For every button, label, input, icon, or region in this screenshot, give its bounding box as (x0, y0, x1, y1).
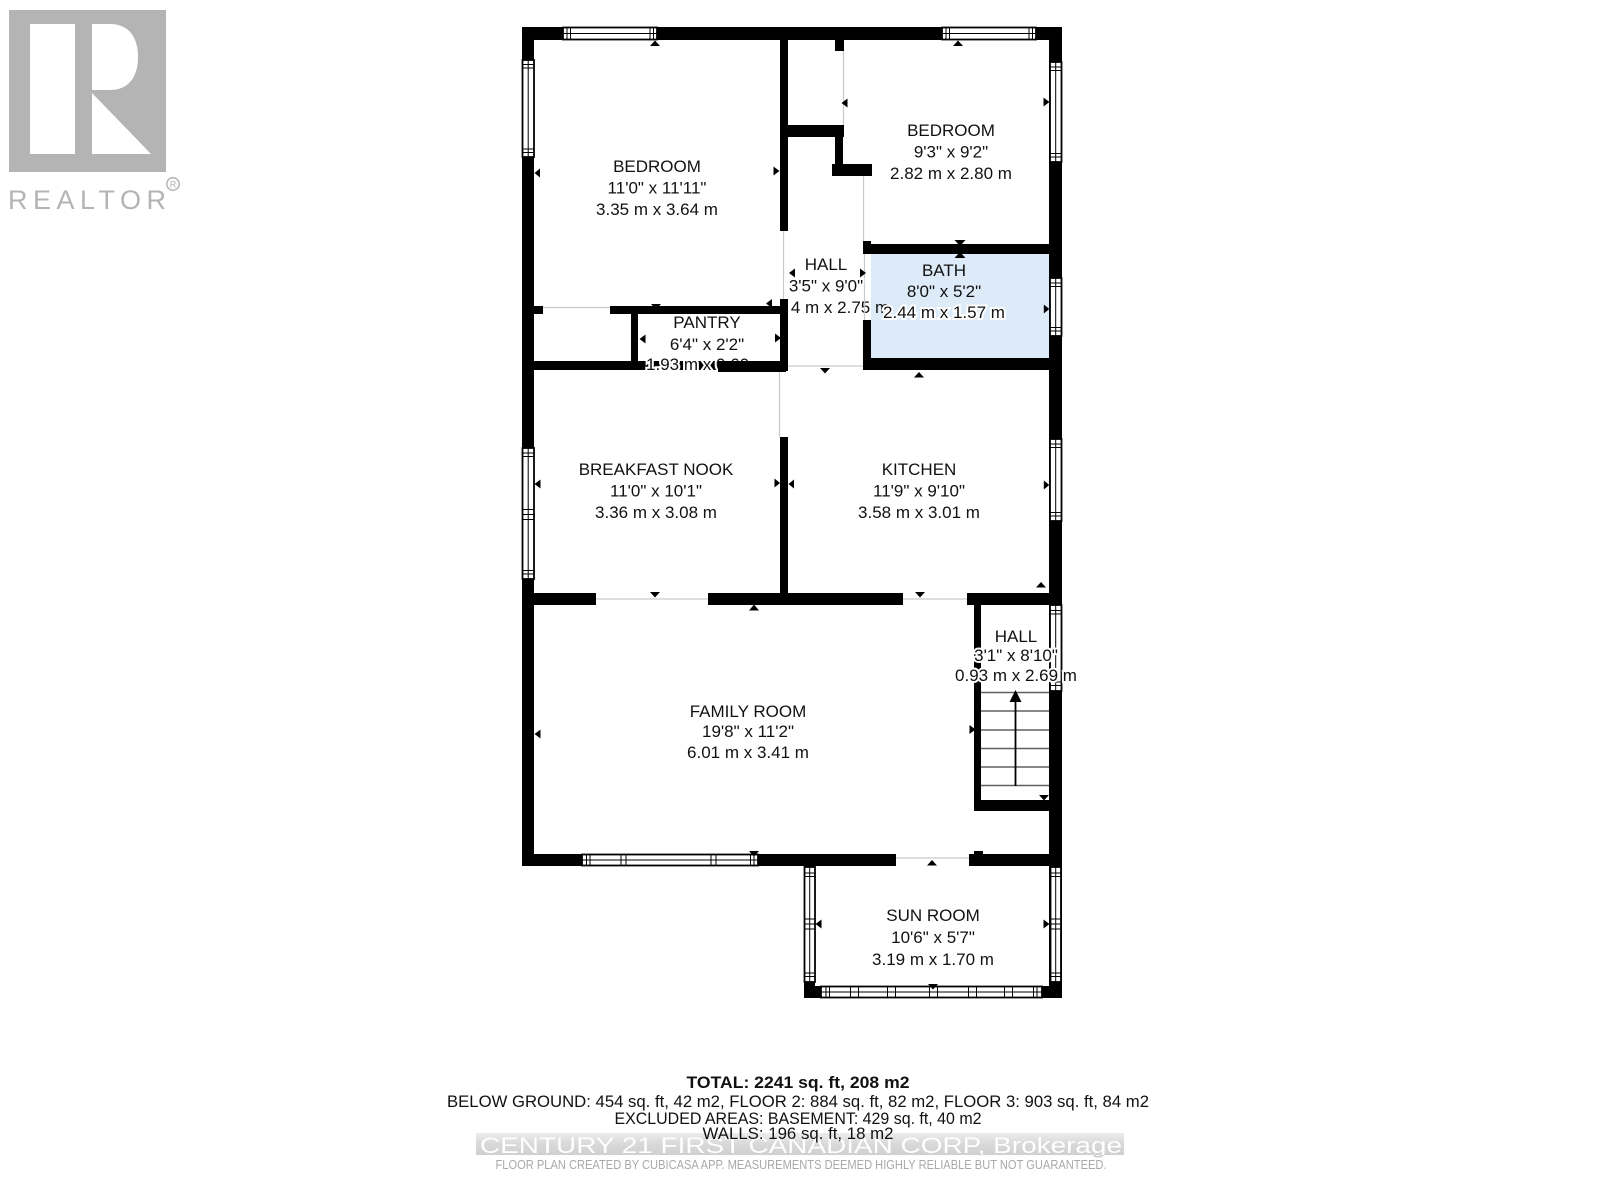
svg-text:BREAKFAST NOOK: BREAKFAST NOOK (579, 460, 734, 479)
svg-text:3'1" x 8'10": 3'1" x 8'10" (974, 646, 1058, 665)
svg-text:0.93 m x 2.69 m: 0.93 m x 2.69 m (955, 666, 1077, 685)
svg-text:2.82 m x 2.80 m: 2.82 m x 2.80 m (890, 164, 1012, 183)
svg-text:11'0" x 10'1": 11'0" x 10'1" (610, 482, 702, 501)
svg-text:BELOW GROUND: 454 sq. ft, 42 m: BELOW GROUND: 454 sq. ft, 42 m2, FLOOR 2… (447, 1093, 1149, 1111)
svg-text:PANTRY: PANTRY (673, 313, 740, 332)
svg-text:BEDROOM: BEDROOM (907, 121, 995, 140)
svg-text:HALL: HALL (805, 255, 848, 274)
svg-text:WALLS: 196 sq. ft, 18 m2: WALLS: 196 sq. ft, 18 m2 (703, 1125, 894, 1143)
svg-text:HALL: HALL (995, 627, 1038, 646)
svg-text:2.44 m x 1.57 m: 2.44 m x 1.57 m (883, 303, 1005, 322)
svg-text:10'6" x 5'7": 10'6" x 5'7" (891, 928, 975, 947)
svg-text:3.19 m x 1.70 m: 3.19 m x 1.70 m (872, 950, 994, 969)
svg-text:8'0" x 5'2": 8'0" x 5'2" (907, 282, 981, 301)
svg-text:6'4" x 2'2": 6'4" x 2'2" (670, 335, 744, 354)
svg-text:BATH: BATH (922, 261, 966, 280)
svg-text:3.36 m x 3.08 m: 3.36 m x 3.08 m (595, 503, 717, 522)
svg-text:TOTAL: 2241 sq. ft, 208 m2: TOTAL: 2241 sq. ft, 208 m2 (687, 1073, 910, 1092)
svg-text:FAMILY ROOM: FAMILY ROOM (690, 702, 807, 721)
svg-text:11'9" x 9'10": 11'9" x 9'10" (873, 482, 965, 501)
svg-text:3'5" x 9'0": 3'5" x 9'0" (789, 277, 863, 296)
svg-text:BEDROOM: BEDROOM (613, 157, 701, 176)
svg-text:4 m x 2.75 m: 4 m x 2.75 m (791, 298, 889, 317)
svg-text:KITCHEN: KITCHEN (882, 460, 957, 479)
svg-text:SUN ROOM: SUN ROOM (886, 906, 980, 925)
svg-text:R: R (170, 180, 177, 190)
svg-text:6.01 m x 3.41 m: 6.01 m x 3.41 m (687, 743, 809, 762)
svg-text:19'8" x 11'2": 19'8" x 11'2" (702, 722, 794, 741)
svg-text:FLOOR PLAN CREATED BY CUBICASA: FLOOR PLAN CREATED BY CUBICASA APP. MEAS… (496, 1158, 1107, 1172)
svg-text:9'3" x 9'2": 9'3" x 9'2" (914, 143, 988, 162)
svg-text:3.35 m x 3.64 m: 3.35 m x 3.64 m (596, 200, 718, 219)
svg-text:11'0" x 11'11": 11'0" x 11'11" (608, 179, 707, 198)
svg-text:3.58 m x 3.01 m: 3.58 m x 3.01 m (858, 503, 980, 522)
